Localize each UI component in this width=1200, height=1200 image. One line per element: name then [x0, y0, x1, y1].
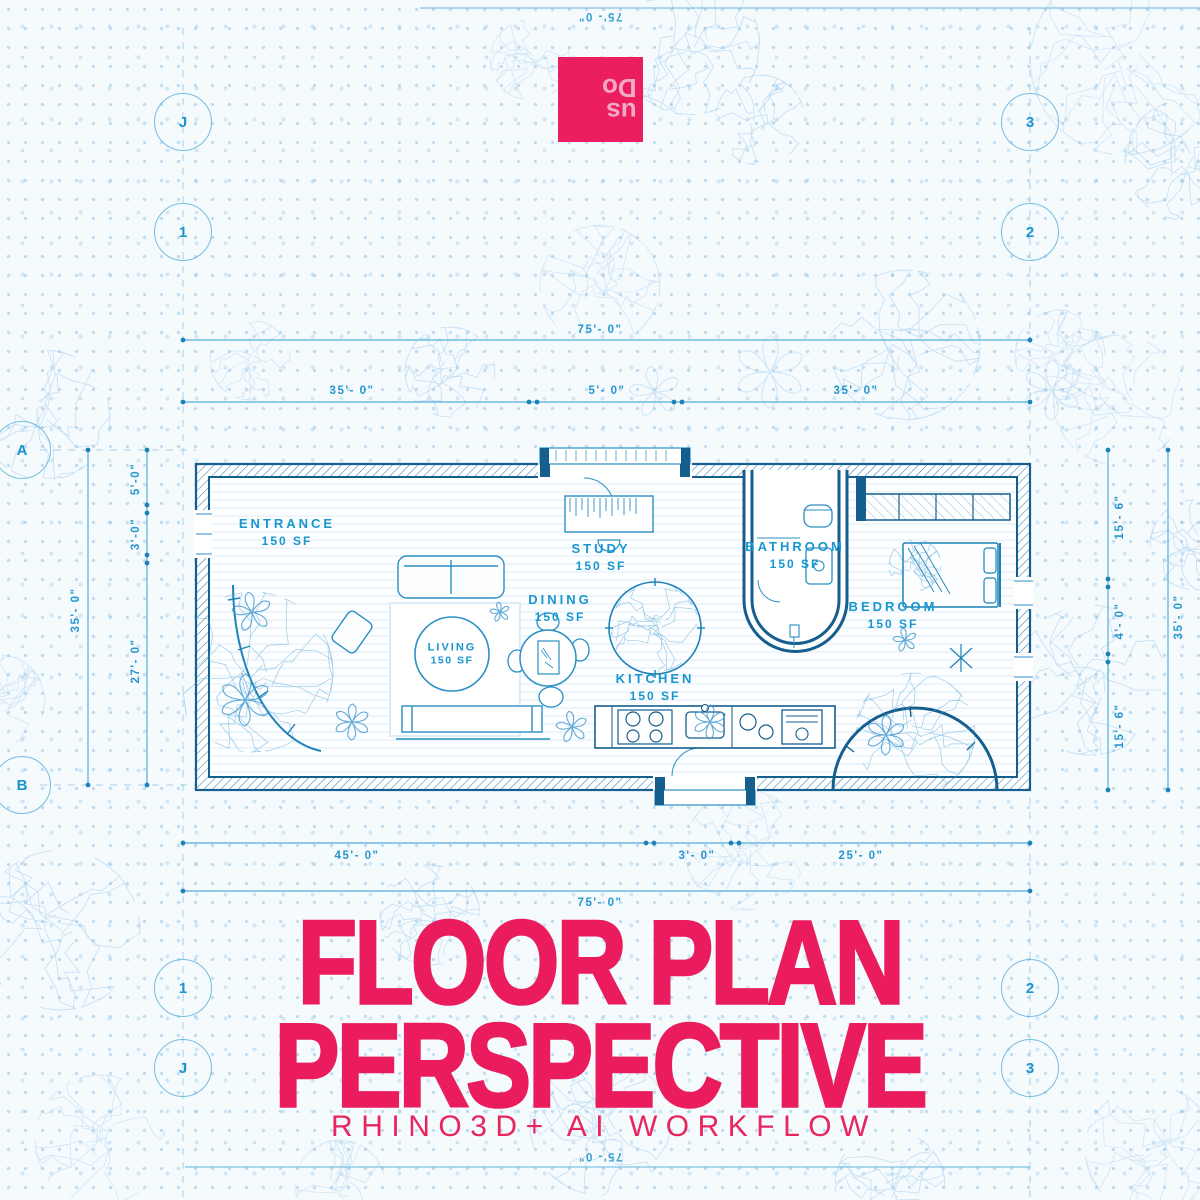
foliage-scribble — [295, 1140, 384, 1200]
kitchen-counter — [595, 705, 835, 749]
dim-edge-bottom: 75'- 0" — [578, 1150, 623, 1162]
poster-title: FLOOR PLAN PERSPECTIVE — [275, 912, 925, 1117]
foliage-scribble — [636, 0, 760, 115]
dim-left-seg-2: 3'-0" — [130, 518, 142, 550]
poster-canvas: J 3 1 2 A B 1 2 J 3 75'- 0" 35'- 0" 5'- … — [0, 0, 1200, 1200]
living-circle — [407, 609, 497, 699]
foliage-scribble — [1085, 1090, 1200, 1200]
room-label-kitchen: KITCHEN 150 SF — [616, 671, 695, 703]
sofa — [398, 556, 504, 598]
grid-bubble-bottom-right-outer: 3 — [1001, 1039, 1059, 1097]
dim-left-seg-1: 5'-0" — [130, 463, 142, 495]
foliage-scribble — [540, 225, 660, 338]
dous-logo: us Do — [558, 57, 643, 142]
grid-bubble-bottom-left-outer: J — [154, 1039, 212, 1097]
room-label-dining: DINING 150 SF — [528, 592, 592, 624]
grid-bubble-bottom-left-inner: 1 — [154, 959, 212, 1017]
foliage-scribble — [0, 850, 140, 1010]
poster-subtitle: RHINO3D+ AI WORKFLOW — [331, 1110, 877, 1144]
foliage-scribble — [1053, 335, 1180, 464]
grid-bubble-top-left-inner: 1 — [154, 203, 212, 261]
foliage-scribble — [1015, 605, 1162, 755]
dim-right-seg-2: 4'- 0" — [1114, 602, 1126, 639]
foliage-scribble — [1015, 310, 1105, 400]
dim-bottom-seg-2: 3'- 0" — [678, 850, 715, 862]
toilet — [804, 505, 832, 527]
dim-edge-top: 75'- 0" — [578, 10, 623, 22]
grid-bubble-bottom-right-inner: 2 — [1001, 959, 1059, 1017]
grid-bubble-top-left-outer: J — [154, 93, 212, 151]
room-label-entrance: ENTRANCE 150 SF — [239, 516, 335, 548]
grid-bubble-top-right-outer: 3 — [1001, 93, 1059, 151]
foliage-scribble — [210, 321, 290, 400]
foliage-scribble — [0, 655, 45, 744]
room-label-bedroom: BEDROOM 150 SF — [849, 599, 938, 631]
dous-logo-text: us Do — [602, 75, 637, 123]
flower-glyph — [629, 366, 678, 415]
right-window-1 — [1014, 577, 1033, 609]
dim-top-seg-3: 35'- 0" — [834, 385, 879, 397]
dim-top-seg-2: 5'- 0" — [588, 385, 625, 397]
foliage-scribble — [830, 270, 980, 420]
dim-top-seg-1: 35'- 0" — [330, 385, 375, 397]
dim-top-total: 75'- 0" — [578, 324, 623, 336]
room-label-bathroom: BATHROOM 150 SF — [745, 539, 845, 571]
room-label-study: STUDY 150 SF — [571, 541, 630, 573]
wardrobe — [862, 494, 1010, 520]
title-line-2: PERSPECTIVE — [275, 1015, 925, 1118]
flower-glyph — [1026, 360, 1079, 420]
dim-left-seg-3: 27'- 0" — [130, 639, 142, 684]
dim-bottom-seg-1: 45'- 0" — [335, 850, 380, 862]
foliage-scribble — [835, 1137, 945, 1200]
dim-right-seg-3: 15'- 6" — [1114, 704, 1126, 749]
flower-glyph — [738, 336, 801, 408]
bedroom-partition — [856, 477, 866, 521]
foliage-scribble — [1150, 500, 1200, 590]
foliage-scribble — [715, 75, 803, 165]
grid-bubble-top-right-inner: 2 — [1001, 203, 1059, 261]
dim-left-outer: 35'- 0" — [70, 588, 82, 633]
bathroom-fixture — [790, 625, 799, 637]
dim-right-seg-1: 15'- 6" — [1114, 495, 1126, 540]
dim-right-outer: 35'- 0" — [1173, 595, 1185, 640]
dim-bottom-seg-3: 25'- 0" — [839, 850, 884, 862]
foliage-scribble — [35, 1075, 165, 1200]
